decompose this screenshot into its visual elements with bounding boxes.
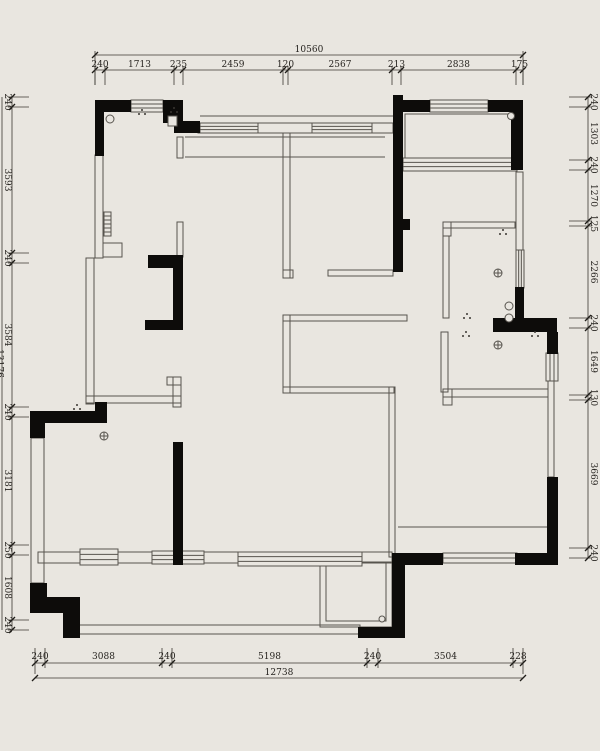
pipe-circle-symbol <box>505 302 513 310</box>
dimension-label: 240 <box>31 652 48 662</box>
floor-drain-symbol <box>100 432 108 440</box>
dimension-label: 175 <box>511 60 528 70</box>
dimension-chain-right: 24013032401270125226624016491303669240 <box>569 93 598 561</box>
door-jamb <box>103 243 122 257</box>
dimension-chain-left: 240359324035842403181250160824013176 <box>0 93 29 633</box>
dimension-label: 240 <box>2 249 12 266</box>
dimension-label: 240 <box>588 93 598 110</box>
window-symbol <box>200 123 258 133</box>
dimension-label: 240 <box>2 403 12 420</box>
dimension-label: 125 <box>588 215 598 232</box>
dimension-label: 2567 <box>329 60 352 70</box>
dimension-label: 240 <box>588 156 598 173</box>
dimension-chains-layer: 2401713235245912025672132838175105602403… <box>0 45 598 681</box>
window-symbol <box>516 250 524 288</box>
floor-plan-canvas: 2401713235245912025672132838175105602403… <box>0 0 600 751</box>
spot-dots-symbol <box>73 404 81 410</box>
pipe-circle-symbol <box>379 616 385 622</box>
dimension-label: 120 <box>277 60 294 70</box>
dimension-label: 3584 <box>2 324 12 347</box>
pipe-circle-symbol <box>505 314 513 322</box>
floor-drain-symbol <box>494 341 502 349</box>
balcony-outer-wall <box>78 625 360 634</box>
dimension-total-label: 12738 <box>265 668 294 678</box>
dimension-label: 1608 <box>2 576 12 599</box>
dimension-total-label: 10560 <box>295 45 324 55</box>
window-symbol <box>238 552 362 566</box>
dimension-label: 250 <box>2 541 12 558</box>
dimension-label: 3593 <box>2 169 12 192</box>
floor-plan-drawing: 2401713235245912025672132838175105602403… <box>0 0 600 751</box>
spot-dots-symbol <box>463 313 471 319</box>
bedroom-divider-wall <box>283 133 290 278</box>
dimension-label: 3088 <box>92 652 115 662</box>
dimension-label: 1303 <box>588 122 598 145</box>
plan-symbols-layer <box>73 107 539 622</box>
central-structural-wall <box>393 95 403 272</box>
pipe-circle-symbol <box>106 115 114 123</box>
spot-dots-symbol <box>499 229 507 235</box>
dimension-total-label: 13176 <box>0 349 4 378</box>
dimension-label: 1270 <box>588 184 598 207</box>
window-symbol <box>80 549 118 565</box>
dimension-label: 240 <box>2 93 12 110</box>
dimension-label: 3181 <box>2 470 12 493</box>
dimension-chain-top: 240171323524591202567213283817510560 <box>91 45 528 85</box>
window-symbol <box>546 353 558 381</box>
dimension-label: 228 <box>509 652 526 662</box>
radiator-symbol <box>104 212 111 236</box>
dimension-chain-bottom: 24030882405198240350422812738 <box>31 648 526 681</box>
window-symbol <box>131 100 163 112</box>
door-frame-marker <box>168 116 177 126</box>
dimension-label: 2266 <box>588 261 598 284</box>
dimension-label: 240 <box>158 652 175 662</box>
window-symbol <box>403 158 517 171</box>
dimension-label: 2459 <box>222 60 245 70</box>
dimension-label: 240 <box>588 314 598 331</box>
dimension-label: 240 <box>2 616 12 633</box>
dimension-label: 5198 <box>258 652 281 662</box>
dimension-label: 213 <box>388 60 405 70</box>
pipe-circle-symbol <box>508 113 515 120</box>
window-symbol <box>443 553 517 563</box>
window-symbol <box>430 100 488 112</box>
dimension-label: 130 <box>588 389 598 406</box>
living-partition-wall <box>283 315 407 321</box>
windows-layer <box>80 100 558 566</box>
dimension-label: 3504 <box>434 652 457 662</box>
dimension-label: 2838 <box>447 60 470 70</box>
dimension-label: 240 <box>588 544 598 561</box>
dimension-label: 235 <box>170 60 187 70</box>
floor-drain-symbol <box>494 269 502 277</box>
spot-dots-symbol <box>462 331 470 337</box>
dimension-label: 240 <box>364 652 381 662</box>
dimension-label: 1649 <box>588 350 598 373</box>
dimension-label: 1713 <box>128 60 151 70</box>
sunroom-inner-wall <box>405 114 513 158</box>
dimension-label: 3669 <box>588 463 598 486</box>
dimension-label: 240 <box>91 60 108 70</box>
window-symbol <box>312 123 372 133</box>
